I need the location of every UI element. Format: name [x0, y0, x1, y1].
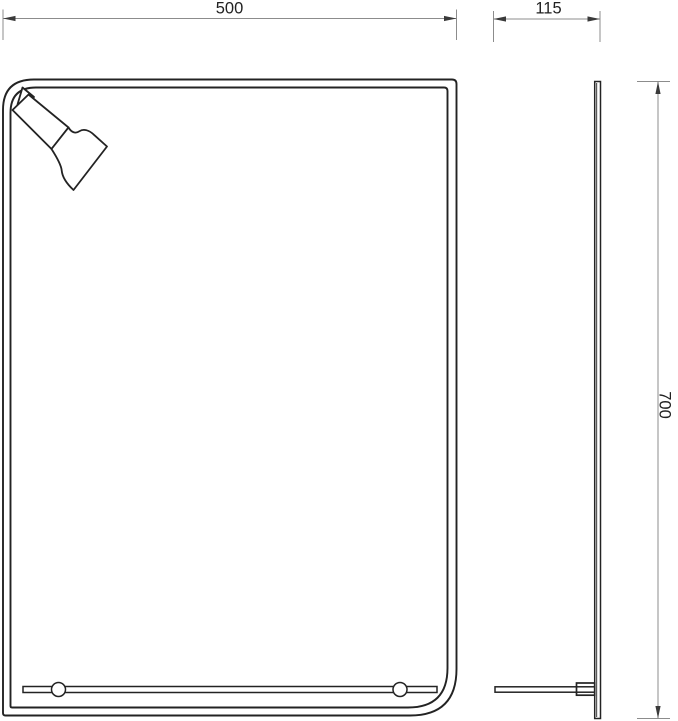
dimension-arrow-icon [655, 82, 660, 95]
mirror-technical-drawing: 500 115 700 [0, 0, 678, 721]
mirror-profile [595, 82, 601, 719]
dimension-arrow-icon [3, 16, 16, 21]
dimension-width-label: 500 [216, 0, 244, 18]
dimension-arrow-icon [444, 16, 457, 21]
dimension-width: 500 [3, 0, 457, 40]
dimension-arrow-icon [588, 16, 601, 21]
drawing-canvas: 500 115 700 [0, 0, 678, 721]
spotlight-lamp-icon [13, 88, 108, 191]
shelf-front [23, 683, 437, 697]
dimension-arrow-icon [655, 706, 660, 719]
shelf-support-left [52, 683, 66, 697]
dimension-depth-label: 115 [535, 0, 561, 18]
shelf-bar [23, 687, 437, 693]
dimension-height-label: 700 [656, 391, 674, 419]
shelf-profile [495, 687, 595, 692]
side-view [495, 82, 601, 719]
dimension-height: 700 [637, 82, 674, 719]
front-view [3, 80, 457, 716]
dimension-arrow-icon [494, 16, 507, 21]
shelf-support-right [393, 683, 407, 697]
dimension-depth: 115 [494, 0, 601, 42]
